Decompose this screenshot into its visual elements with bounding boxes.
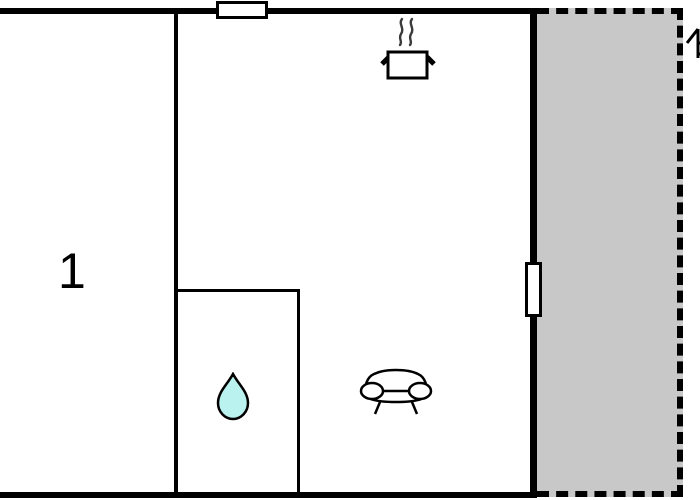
partial-number-1-icon [686,26,700,60]
steam-icon [400,19,412,45]
sofa-icon [358,366,434,416]
water-drop-icon [214,372,252,422]
window-icon [216,1,268,19]
cooking-pot-icon [380,16,436,82]
wall-bottom [0,492,537,498]
door-icon [525,262,542,317]
terrace-area [537,8,683,497]
wall-top [0,8,537,14]
floor-plan: 1 [0,0,700,500]
wall-right [530,8,537,498]
room-1-label: 1 [58,246,86,296]
